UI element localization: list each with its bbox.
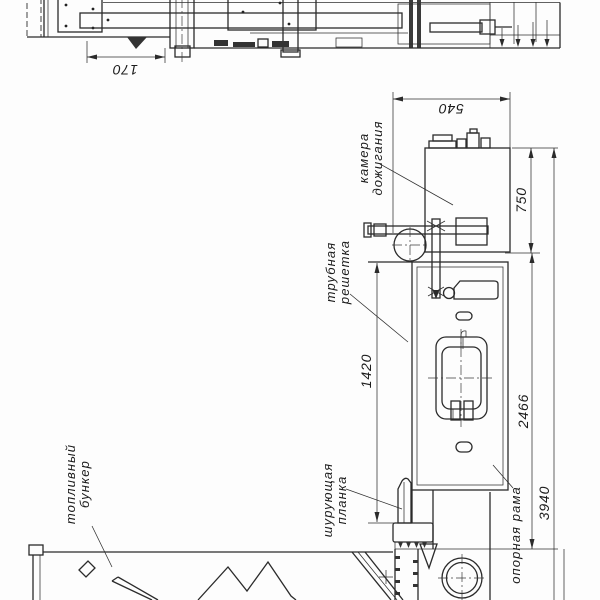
dimension-3940: 3940: [536, 148, 564, 600]
top-view-extension-arrows: [500, 20, 550, 47]
top-view: [27, 0, 560, 62]
stoker-bar-label-line2: планка: [334, 476, 349, 525]
label-stoker-bar: шурующая планка: [320, 463, 402, 538]
dim-2466-text: 2466: [515, 394, 531, 429]
label-support-frame: опорная рама: [493, 465, 523, 584]
dimension-1420: 1420: [358, 263, 396, 523]
dim-750-text: 750: [513, 187, 529, 213]
dim-3940-text: 3940: [536, 486, 552, 520]
fuel-bunker: [29, 545, 403, 600]
dimension-170: 170: [87, 41, 165, 78]
stoker-bar-assembly: [393, 478, 486, 600]
tube-grid-label-line1: трубная: [323, 242, 338, 303]
drawing-canvas: 170 540: [0, 0, 600, 600]
combustion-chamber-label-line2: дожигания: [370, 120, 385, 195]
label-fuel-bunker: топливный бункер: [63, 444, 112, 567]
upper-slot: [456, 312, 472, 320]
dim-1420-text: 1420: [358, 354, 374, 388]
label-combustion-chamber: камера дожигания: [356, 120, 453, 205]
stoker-bar-label-line1: шурующая: [320, 463, 335, 538]
dim-540-text: 540: [438, 101, 464, 117]
fuel-bunker-label-line1: топливный: [63, 444, 78, 524]
dim-170-text: 170: [112, 62, 138, 78]
fuel-door: [428, 329, 495, 427]
dimension-540: 540: [393, 92, 510, 233]
stoker-drive-mechanism: [364, 218, 488, 299]
upper-door: [444, 281, 499, 299]
fuel-bunker-label-line2: бункер: [77, 460, 92, 508]
support-frame-label: опорная рама: [508, 486, 523, 584]
combustion-chamber-label-line1: камера: [356, 133, 371, 184]
tube-grid-label-line2: решетка: [337, 240, 352, 305]
dimension-750: 750: [505, 148, 558, 253]
lower-slot: [456, 442, 472, 452]
drawing-sheet: 170 540: [0, 0, 600, 600]
label-tube-grid: трубная решетка: [323, 240, 408, 342]
